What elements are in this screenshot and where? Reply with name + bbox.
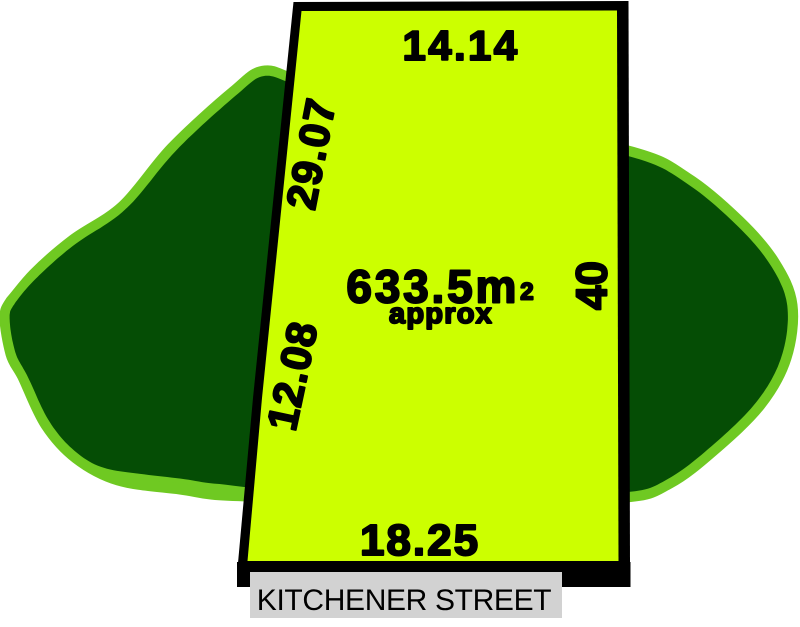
svg-text:KITCHENER STREET: KITCHENER STREET xyxy=(257,584,551,617)
svg-text:40: 40 xyxy=(568,261,617,310)
svg-text:approx: approx xyxy=(389,298,493,330)
svg-text:18.25: 18.25 xyxy=(360,516,480,565)
svg-text:14.14: 14.14 xyxy=(402,22,519,69)
